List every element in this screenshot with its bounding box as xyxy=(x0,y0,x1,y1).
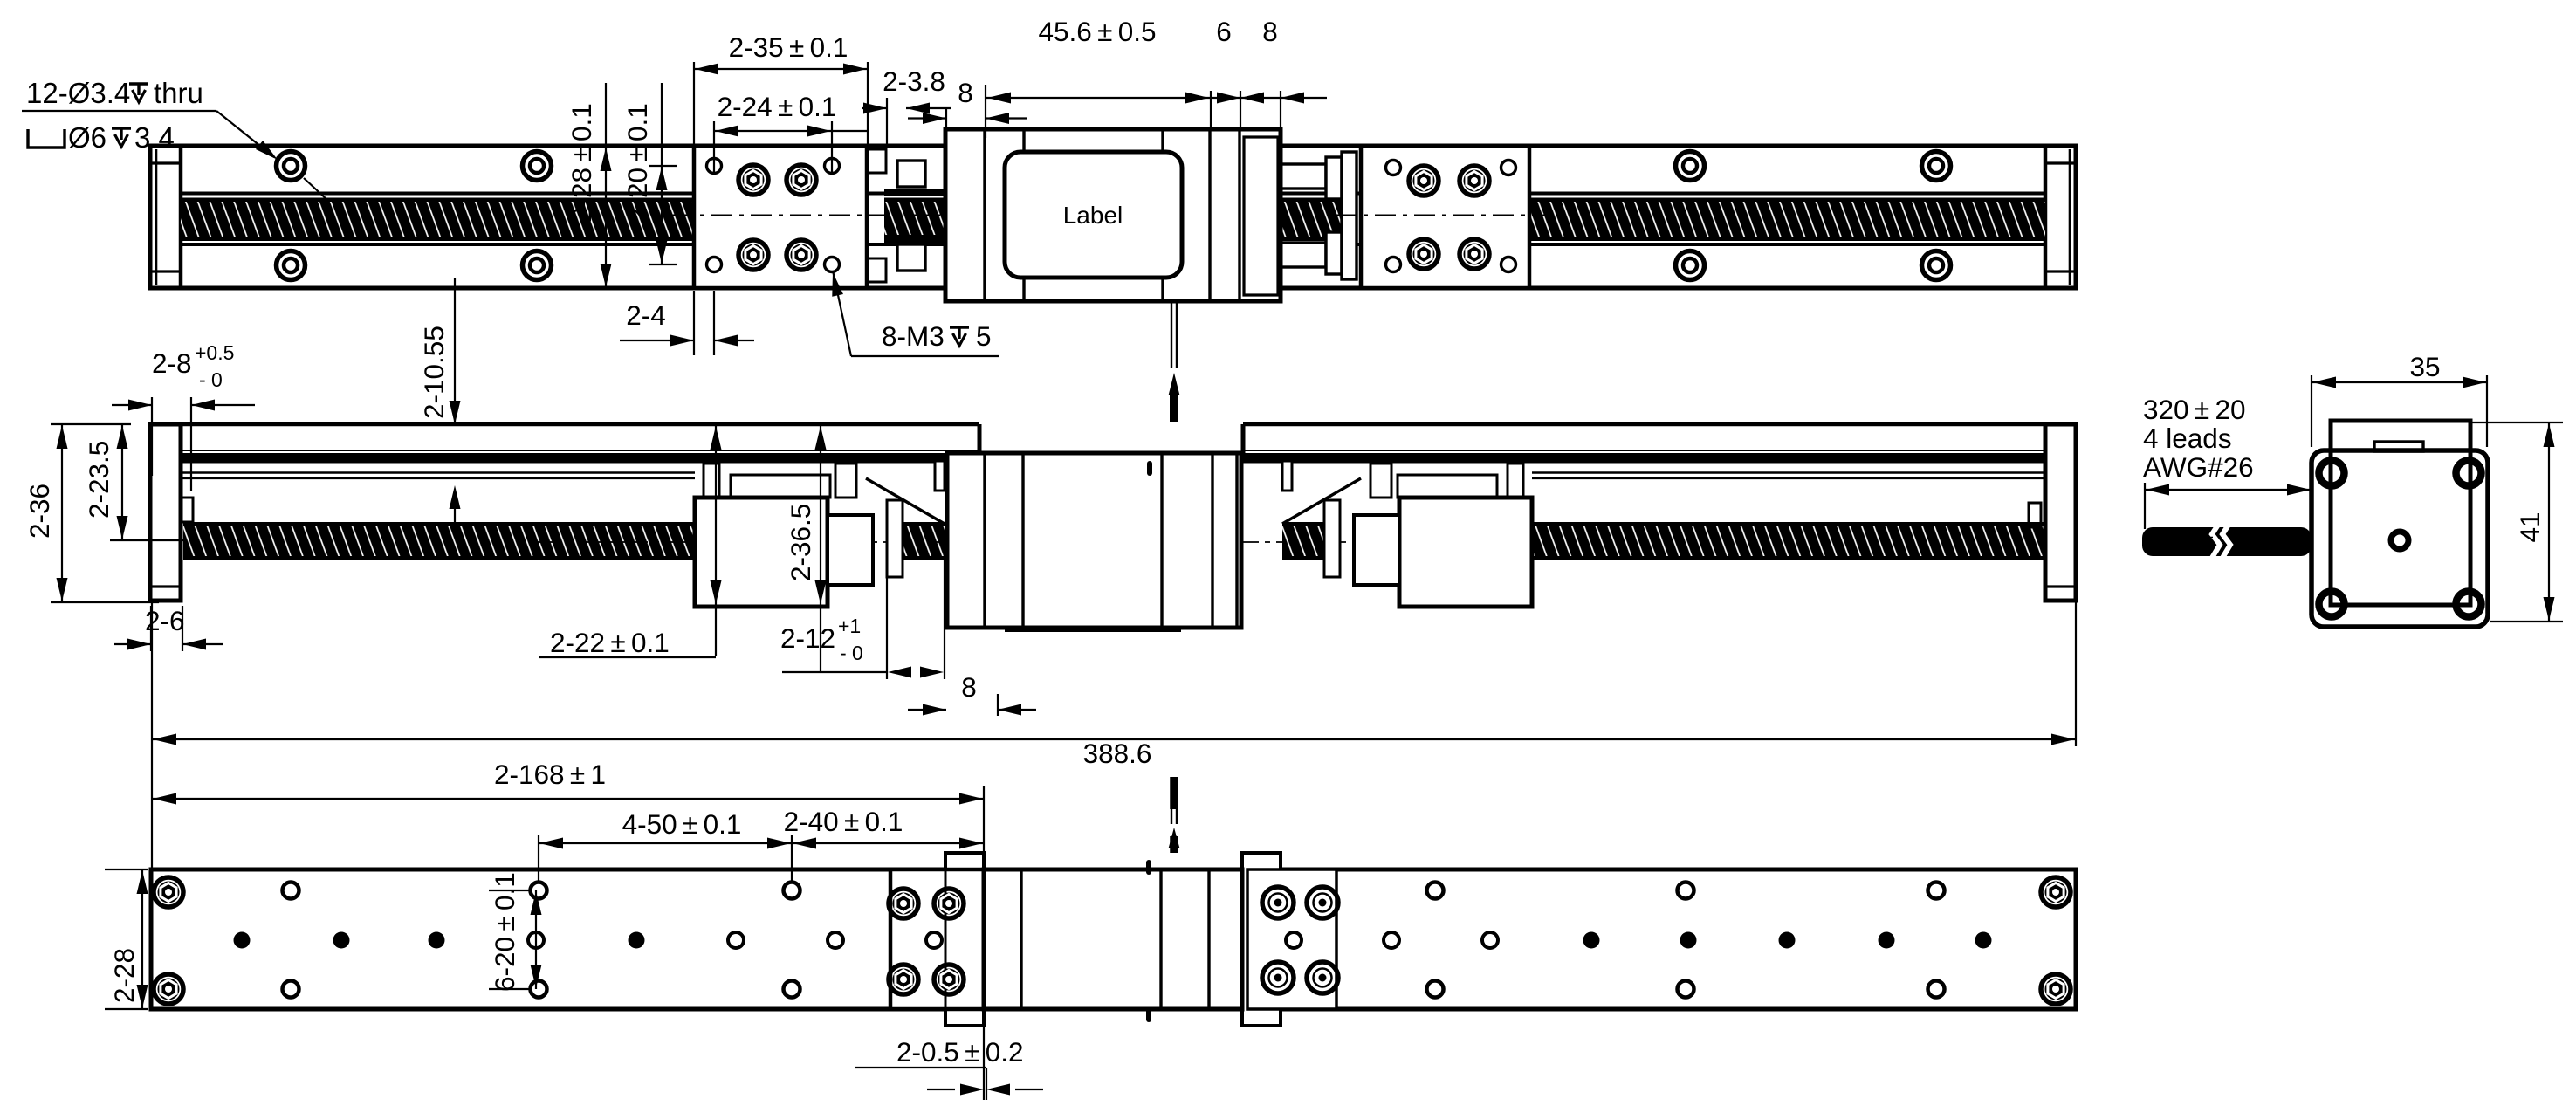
svg-text:+0.5: +0.5 xyxy=(195,341,234,364)
svg-text:2-20 ± 0.1: 2-20 ± 0.1 xyxy=(622,103,653,223)
svg-text:Ø6: Ø6 xyxy=(68,121,106,154)
svg-text:2-22 ± 0.1: 2-22 ± 0.1 xyxy=(550,627,670,658)
svg-text:4-50 ± 0.1: 4-50 ± 0.1 xyxy=(622,808,742,840)
svg-text:Label: Label xyxy=(1063,202,1123,229)
svg-text:2-3.8: 2-3.8 xyxy=(883,65,945,97)
svg-text:8: 8 xyxy=(961,671,977,703)
svg-text:5: 5 xyxy=(976,320,992,352)
svg-text:2-28 ± 0.1: 2-28 ± 0.1 xyxy=(566,103,597,223)
svg-text:3.4: 3.4 xyxy=(134,121,175,154)
svg-text:8: 8 xyxy=(958,77,973,108)
svg-text:2-23.5: 2-23.5 xyxy=(83,441,114,519)
svg-text:- 0: - 0 xyxy=(199,368,223,391)
svg-text:2-4: 2-4 xyxy=(626,299,666,331)
svg-text:2-12: 2-12 xyxy=(780,622,835,654)
svg-text:8: 8 xyxy=(1262,16,1278,47)
svg-text:2-35 ± 0.1: 2-35 ± 0.1 xyxy=(729,31,848,63)
svg-text:320 ± 20: 320 ± 20 xyxy=(2143,394,2246,425)
svg-text:AWG#26: AWG#26 xyxy=(2143,451,2254,483)
svg-text:2-36: 2-36 xyxy=(24,484,55,539)
svg-text:2-8: 2-8 xyxy=(152,347,192,379)
svg-text:2-24 ± 0.1: 2-24 ± 0.1 xyxy=(718,91,837,122)
svg-text:2-36.5: 2-36.5 xyxy=(785,504,816,581)
svg-text:6: 6 xyxy=(1216,16,1232,47)
svg-text:35: 35 xyxy=(2409,351,2440,382)
svg-text:45.6 ± 0.5: 45.6 ± 0.5 xyxy=(1039,16,1157,47)
svg-text:+1: +1 xyxy=(838,615,861,637)
svg-text:388.6: 388.6 xyxy=(1083,738,1152,769)
svg-text:2-168 ± 1: 2-168 ± 1 xyxy=(494,759,606,790)
svg-text:2-10.55: 2-10.55 xyxy=(418,326,450,419)
svg-text:4 leads: 4 leads xyxy=(2143,422,2232,454)
svg-text:12-Ø3.4: 12-Ø3.4 xyxy=(26,77,130,109)
svg-text:2-0.5 ± 0.2: 2-0.5 ± 0.2 xyxy=(896,1036,1024,1068)
svg-text:2-28: 2-28 xyxy=(108,948,140,1003)
svg-text:41: 41 xyxy=(2514,512,2545,542)
svg-text:2-40 ± 0.1: 2-40 ± 0.1 xyxy=(784,806,903,837)
svg-text:- 0: - 0 xyxy=(840,642,863,664)
svg-text:8-M3: 8-M3 xyxy=(882,320,945,352)
svg-text:thru: thru xyxy=(154,77,203,109)
